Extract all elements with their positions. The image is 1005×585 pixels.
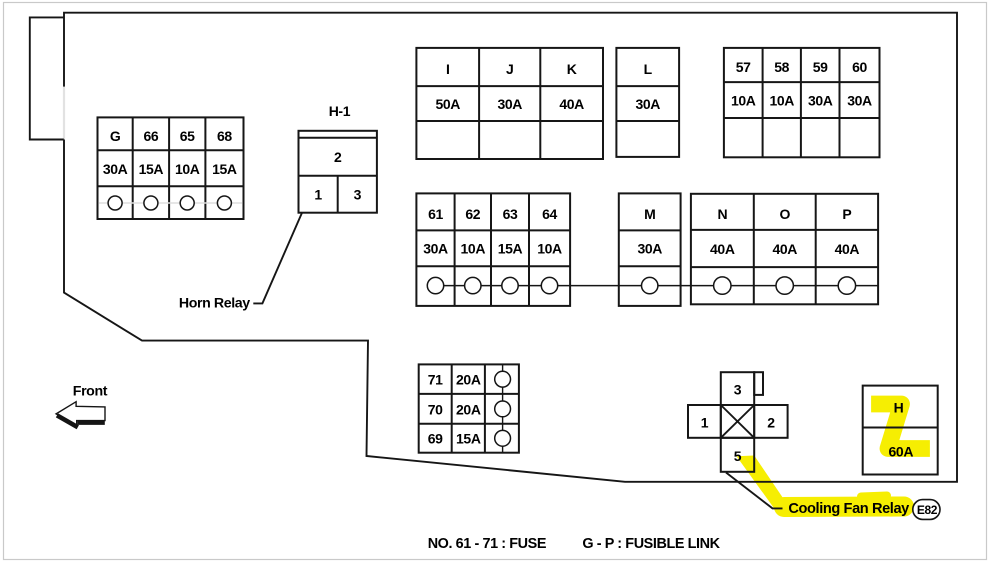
svg-text:15A: 15A [212, 161, 237, 177]
svg-text:Front: Front [73, 384, 108, 400]
svg-text:40A: 40A [559, 96, 584, 112]
svg-text:10A: 10A [537, 241, 562, 257]
svg-text:5: 5 [734, 448, 742, 464]
svg-text:40A: 40A [772, 241, 797, 257]
svg-text:30A: 30A [103, 161, 128, 177]
svg-text:2: 2 [767, 415, 775, 431]
svg-text:P: P [842, 206, 851, 222]
svg-text:57: 57 [736, 59, 751, 75]
svg-text:65: 65 [180, 128, 195, 144]
svg-text:G - P : FUSIBLE LINK: G - P : FUSIBLE LINK [582, 536, 720, 552]
svg-text:G: G [110, 128, 121, 144]
svg-text:58: 58 [774, 59, 789, 75]
svg-text:E82: E82 [917, 503, 938, 517]
svg-text:Horn Relay: Horn Relay [179, 296, 250, 312]
svg-text:1: 1 [314, 187, 322, 203]
svg-text:30A: 30A [497, 96, 522, 112]
svg-text:J: J [506, 61, 513, 77]
svg-text:10A: 10A [461, 241, 486, 257]
svg-text:Cooling Fan Relay: Cooling Fan Relay [788, 501, 910, 517]
svg-text:3: 3 [734, 382, 742, 398]
svg-text:40A: 40A [835, 241, 860, 257]
svg-text:30A: 30A [847, 93, 872, 109]
svg-text:20A: 20A [456, 372, 481, 388]
svg-text:I: I [446, 61, 450, 77]
svg-text:15A: 15A [139, 161, 164, 177]
svg-text:50A: 50A [435, 96, 460, 112]
svg-text:69: 69 [428, 431, 443, 447]
svg-text:3: 3 [354, 187, 362, 203]
svg-text:10A: 10A [175, 161, 200, 177]
svg-text:61: 61 [428, 206, 443, 222]
svg-text:10A: 10A [731, 93, 756, 109]
svg-text:62: 62 [465, 206, 480, 222]
svg-text:2: 2 [334, 149, 342, 165]
svg-text:70: 70 [428, 401, 443, 417]
svg-text:66: 66 [144, 128, 159, 144]
svg-text:K: K [567, 61, 577, 77]
svg-text:59: 59 [813, 59, 828, 75]
svg-text:60A: 60A [889, 443, 914, 459]
svg-text:30A: 30A [637, 241, 662, 257]
svg-text:40A: 40A [710, 241, 735, 257]
svg-text:63: 63 [503, 206, 518, 222]
svg-text:30A: 30A [808, 93, 833, 109]
svg-text:10A: 10A [769, 93, 794, 109]
svg-text:15A: 15A [498, 241, 523, 257]
svg-text:M: M [644, 206, 655, 222]
svg-text:N: N [717, 206, 727, 222]
svg-text:15A: 15A [456, 431, 481, 447]
svg-text:L: L [644, 61, 653, 77]
svg-text:68: 68 [217, 128, 232, 144]
svg-text:30A: 30A [635, 96, 660, 112]
svg-text:H: H [894, 399, 904, 415]
svg-text:30A: 30A [423, 241, 448, 257]
svg-text:NO. 61 - 71 : FUSE: NO. 61 - 71 : FUSE [428, 536, 547, 552]
svg-text:64: 64 [542, 206, 557, 222]
svg-text:H-1: H-1 [329, 103, 351, 119]
svg-text:71: 71 [428, 372, 443, 388]
svg-text:O: O [779, 206, 790, 222]
svg-text:60: 60 [852, 59, 867, 75]
svg-text:20A: 20A [456, 401, 481, 417]
svg-text:1: 1 [701, 415, 709, 431]
